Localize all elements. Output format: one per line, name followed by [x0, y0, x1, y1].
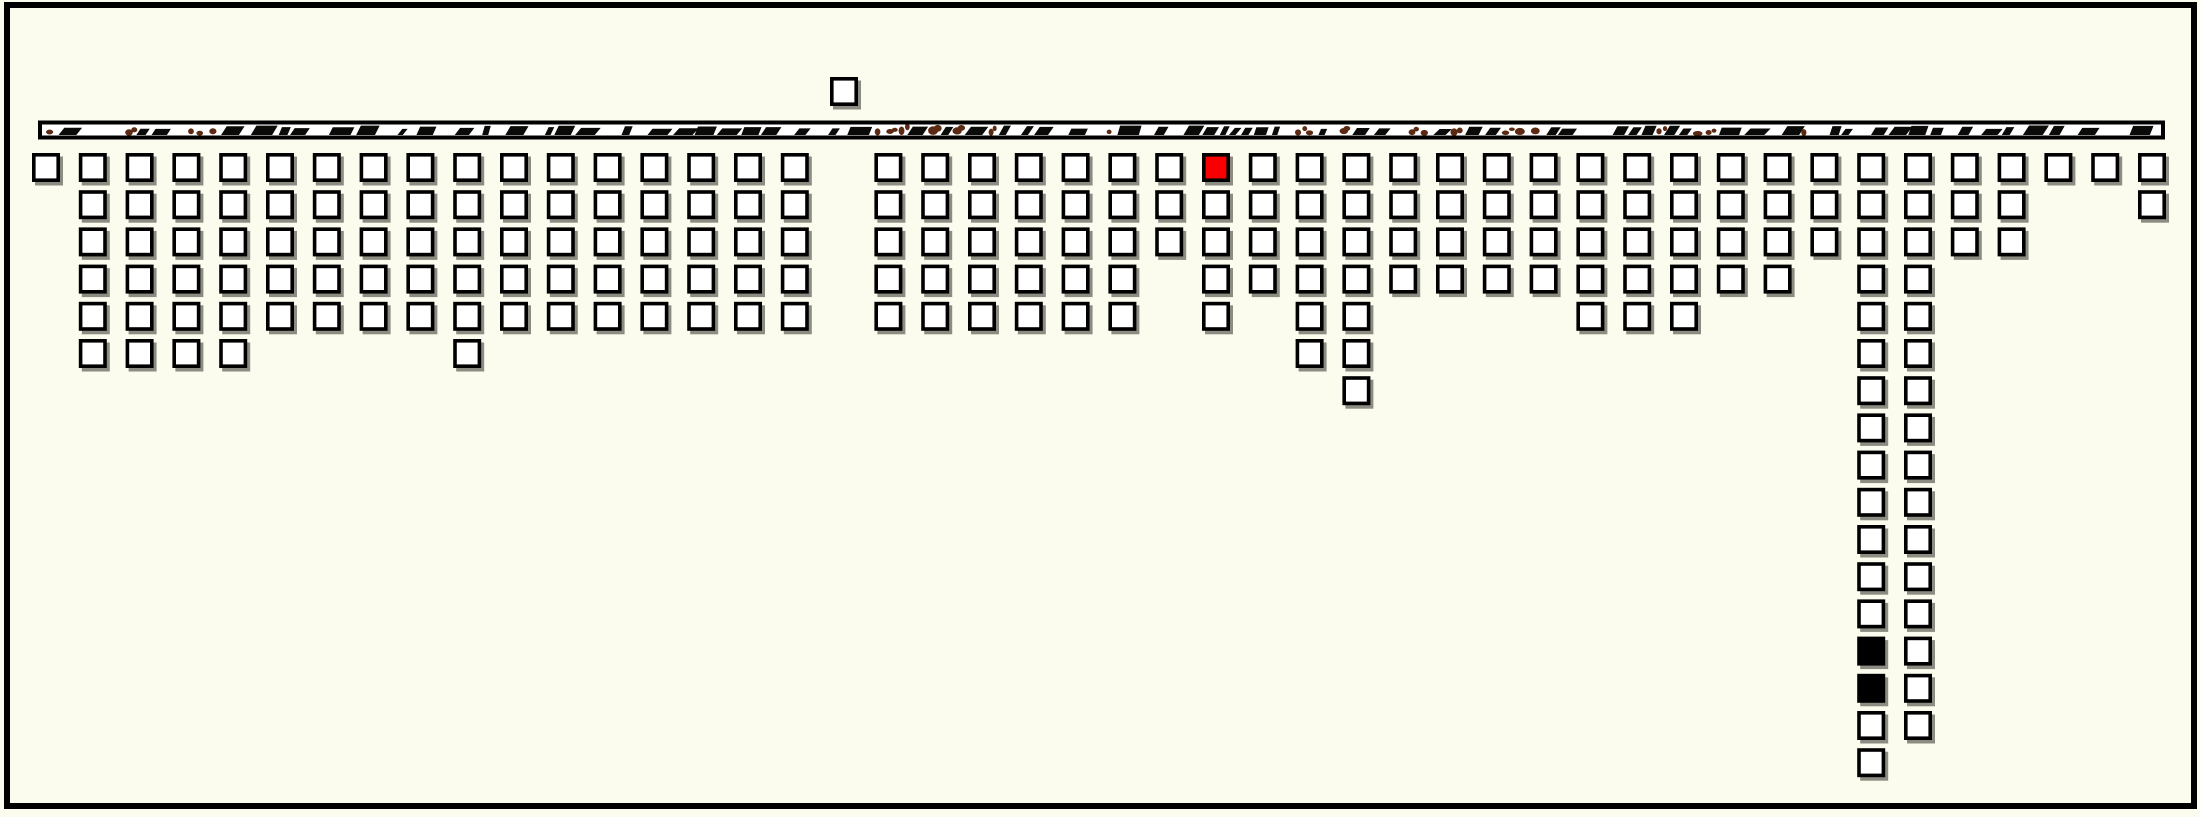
unit-square[interactable]	[1812, 192, 1841, 223]
unit-square[interactable]	[127, 229, 156, 260]
unit-square-face	[502, 155, 526, 180]
unit-square[interactable]	[1719, 155, 1748, 186]
unit-square[interactable]	[81, 304, 110, 335]
unit-square[interactable]	[736, 266, 765, 297]
unit-square[interactable]	[1578, 266, 1607, 297]
unit-square[interactable]	[221, 266, 250, 297]
unit-square[interactable]	[268, 192, 297, 223]
unit-square[interactable]	[81, 155, 110, 186]
unit-square[interactable]	[81, 192, 110, 223]
unit-square[interactable]	[1859, 155, 1888, 186]
unit-square-face	[1344, 155, 1368, 180]
unit-square[interactable]	[1906, 415, 1935, 446]
unit-square[interactable]	[1672, 192, 1701, 223]
unit-square[interactable]	[1578, 155, 1607, 186]
unit-square[interactable]	[174, 341, 203, 372]
unit-square[interactable]	[1344, 304, 1373, 335]
unit-square[interactable]	[1344, 192, 1373, 223]
unit-square[interactable]	[127, 266, 156, 297]
unit-square[interactable]	[455, 304, 484, 335]
unit-square-face	[689, 304, 713, 329]
unit-square[interactable]	[642, 266, 671, 297]
unit-square-face	[970, 155, 994, 180]
unit-square[interactable]	[1485, 192, 1514, 223]
unit-square[interactable]	[783, 304, 812, 335]
axis-mark-dot	[1509, 127, 1515, 131]
unit-square[interactable]	[1765, 266, 1794, 297]
unit-square[interactable]	[455, 266, 484, 297]
unit-square[interactable]	[1110, 192, 1139, 223]
unit-square[interactable]	[970, 192, 999, 223]
unit-square[interactable]	[642, 304, 671, 335]
unit-square[interactable]	[1063, 304, 1092, 335]
unit-square-face	[1297, 266, 1321, 291]
unit-square-face	[81, 266, 105, 291]
axis-mark-slash	[329, 127, 354, 135]
unit-square[interactable]	[876, 155, 905, 186]
unit-square[interactable]	[689, 155, 718, 186]
unit-square-face	[455, 229, 479, 254]
unit-square-face	[221, 229, 245, 254]
unit-square-face	[1906, 601, 1930, 626]
unit-square-face	[1297, 304, 1321, 329]
unit-square-face	[127, 192, 151, 217]
unit-square[interactable]	[174, 266, 203, 297]
unit-square-face	[1859, 564, 1883, 589]
unit-square[interactable]	[127, 304, 156, 335]
unit-square[interactable]	[1859, 266, 1888, 297]
unit-square-face	[408, 229, 432, 254]
unit-square[interactable]	[1017, 304, 1046, 335]
unit-square[interactable]	[502, 155, 531, 186]
unit-square[interactable]	[361, 192, 390, 223]
highlighted-square-red[interactable]	[1204, 155, 1233, 186]
unit-square[interactable]	[736, 304, 765, 335]
unit-square[interactable]	[783, 229, 812, 260]
unit-square[interactable]	[174, 304, 203, 335]
unit-square[interactable]	[783, 155, 812, 186]
unit-square[interactable]	[1812, 229, 1841, 260]
unit-square[interactable]	[1017, 192, 1046, 223]
unit-square[interactable]	[1999, 155, 2028, 186]
axis-mark-dot	[1295, 129, 1301, 135]
unit-square[interactable]	[81, 229, 110, 260]
unit-square[interactable]	[1578, 229, 1607, 260]
unit-square-face	[642, 192, 666, 217]
unit-square[interactable]	[315, 229, 344, 260]
unit-square[interactable]	[502, 266, 531, 297]
unit-square[interactable]	[455, 341, 484, 372]
unit-square[interactable]	[1906, 676, 1935, 707]
unit-square-face	[221, 192, 245, 217]
unit-square-face	[1204, 266, 1228, 291]
unit-square[interactable]	[1859, 192, 1888, 223]
unit-square[interactable]	[221, 304, 250, 335]
unit-square[interactable]	[502, 192, 531, 223]
axis-mark-slash	[1908, 126, 1928, 135]
axis-mark-dot	[1343, 126, 1350, 131]
unit-square-face	[1063, 192, 1087, 217]
unit-square[interactable]	[1906, 229, 1935, 260]
unit-square[interactable]	[455, 155, 484, 186]
unit-square[interactable]	[1719, 266, 1748, 297]
unit-square[interactable]	[1953, 229, 1982, 260]
unit-square[interactable]	[408, 304, 437, 335]
unit-square-face	[1157, 155, 1181, 180]
unit-square[interactable]	[1812, 155, 1841, 186]
unit-square[interactable]	[2046, 155, 2075, 186]
unit-square[interactable]	[595, 192, 624, 223]
unit-square[interactable]	[1017, 155, 1046, 186]
unit-square[interactable]	[408, 229, 437, 260]
unit-square[interactable]	[1859, 564, 1888, 595]
unit-square[interactable]	[1859, 378, 1888, 409]
unit-square[interactable]	[642, 192, 671, 223]
unit-square[interactable]	[1531, 192, 1560, 223]
unit-square[interactable]	[1859, 452, 1888, 483]
unit-square[interactable]	[1297, 266, 1326, 297]
unit-square[interactable]	[1906, 638, 1935, 669]
unit-square[interactable]	[408, 192, 437, 223]
unit-square[interactable]	[1859, 601, 1888, 632]
unit-square-face	[642, 229, 666, 254]
unit-square[interactable]	[1531, 229, 1560, 260]
unit-square[interactable]	[595, 229, 624, 260]
unit-square[interactable]	[361, 155, 390, 186]
unit-square[interactable]	[1110, 266, 1139, 297]
unit-square[interactable]	[315, 304, 344, 335]
unit-square[interactable]	[1906, 564, 1935, 595]
unit-square[interactable]	[1063, 266, 1092, 297]
unit-square[interactable]	[970, 304, 999, 335]
unit-square[interactable]	[1297, 192, 1326, 223]
unit-square[interactable]	[1906, 452, 1935, 483]
unit-square[interactable]	[595, 304, 624, 335]
unit-square[interactable]	[1391, 192, 1420, 223]
unit-square[interactable]	[1344, 266, 1373, 297]
unit-square-face	[1297, 155, 1321, 180]
unit-square[interactable]	[1625, 304, 1654, 335]
unit-square-face	[783, 192, 807, 217]
unit-square[interactable]	[1485, 229, 1514, 260]
unit-square[interactable]	[1906, 527, 1935, 558]
unit-square[interactable]	[876, 229, 905, 260]
unit-square[interactable]	[268, 229, 297, 260]
unit-square[interactable]	[1344, 378, 1373, 409]
unit-square[interactable]	[127, 192, 156, 223]
unit-square[interactable]	[502, 304, 531, 335]
unit-square-face	[127, 341, 151, 366]
unit-grid	[34, 155, 2169, 781]
unit-square-face	[923, 266, 947, 291]
unit-square[interactable]	[783, 266, 812, 297]
unit-square[interactable]	[876, 304, 905, 335]
unit-square[interactable]	[783, 192, 812, 223]
unit-square[interactable]	[1485, 155, 1514, 186]
unit-square[interactable]	[1297, 229, 1326, 260]
unit-square[interactable]	[268, 266, 297, 297]
unit-square-face	[81, 229, 105, 254]
unit-square[interactable]	[1953, 155, 1982, 186]
unit-square[interactable]	[81, 266, 110, 297]
unit-square[interactable]	[1204, 266, 1233, 297]
unit-square[interactable]	[1110, 229, 1139, 260]
unit-square[interactable]	[1672, 266, 1701, 297]
unit-square[interactable]	[923, 304, 952, 335]
unit-square-face	[1859, 713, 1883, 738]
unit-square-face	[1391, 192, 1415, 217]
unit-square-face	[689, 155, 713, 180]
unit-square[interactable]	[736, 192, 765, 223]
unit-square[interactable]	[876, 266, 905, 297]
unit-square[interactable]	[970, 229, 999, 260]
unit-square-face	[1578, 304, 1602, 329]
unit-square-face	[81, 341, 105, 366]
unit-square-face	[408, 304, 432, 329]
unit-square[interactable]	[549, 155, 578, 186]
unit-square[interactable]	[1391, 229, 1420, 260]
unit-square[interactable]	[221, 229, 250, 260]
unit-square[interactable]	[1485, 266, 1514, 297]
unit-square[interactable]	[1906, 490, 1935, 521]
unit-square[interactable]	[1906, 713, 1935, 744]
unit-square-face	[1812, 192, 1836, 217]
unit-square[interactable]	[1391, 266, 1420, 297]
axis-mark-dot	[1414, 127, 1419, 132]
floating-square-face	[832, 79, 856, 104]
unit-square-face	[81, 304, 105, 329]
unit-square[interactable]	[1297, 341, 1326, 372]
unit-square[interactable]	[549, 192, 578, 223]
unit-square[interactable]	[1344, 229, 1373, 260]
unit-square[interactable]	[970, 266, 999, 297]
unit-square[interactable]	[1672, 155, 1701, 186]
unit-square[interactable]	[1859, 341, 1888, 372]
unit-square-face	[1344, 229, 1368, 254]
unit-square[interactable]	[1859, 750, 1888, 781]
axis-mark-dot	[899, 126, 905, 135]
unit-square[interactable]	[1251, 192, 1280, 223]
unit-square[interactable]	[1438, 155, 1467, 186]
unit-square[interactable]	[736, 155, 765, 186]
unit-square[interactable]	[502, 229, 531, 260]
unit-square[interactable]	[1531, 155, 1560, 186]
unit-square[interactable]	[408, 266, 437, 297]
unit-square[interactable]	[1578, 304, 1607, 335]
unit-square[interactable]	[1906, 378, 1935, 409]
unit-square[interactable]	[1017, 229, 1046, 260]
unit-square-face	[1485, 266, 1509, 291]
unit-square[interactable]	[1344, 341, 1373, 372]
unit-square[interactable]	[1906, 192, 1935, 223]
unit-square[interactable]	[923, 155, 952, 186]
unit-square[interactable]	[642, 229, 671, 260]
selected-square-black[interactable]	[1859, 676, 1888, 707]
unit-square[interactable]	[361, 266, 390, 297]
unit-square[interactable]	[1906, 155, 1935, 186]
axis-mark-dot	[1693, 131, 1703, 136]
axis-mark-dot	[989, 129, 994, 136]
unit-square[interactable]	[361, 304, 390, 335]
unit-square[interactable]	[1859, 527, 1888, 558]
unit-square[interactable]	[455, 192, 484, 223]
unit-square-face	[549, 155, 573, 180]
unit-square-face	[1625, 229, 1649, 254]
unit-square-face	[1625, 304, 1649, 329]
unit-square[interactable]	[1297, 155, 1326, 186]
unit-square[interactable]	[268, 155, 297, 186]
unit-square[interactable]	[1344, 155, 1373, 186]
unit-square-face	[1906, 564, 1930, 589]
unit-square[interactable]	[970, 155, 999, 186]
unit-square-face	[174, 229, 198, 254]
unit-square[interactable]	[1765, 192, 1794, 223]
unit-square[interactable]	[1859, 304, 1888, 335]
unit-square-face	[1906, 638, 1930, 663]
axis-mark-dot	[934, 125, 942, 132]
unit-square[interactable]	[1765, 155, 1794, 186]
unit-square[interactable]	[1625, 192, 1654, 223]
unit-square[interactable]	[1719, 229, 1748, 260]
unit-square[interactable]	[1672, 229, 1701, 260]
unit-square[interactable]	[876, 192, 905, 223]
unit-square[interactable]	[1063, 155, 1092, 186]
unit-square[interactable]	[1204, 192, 1233, 223]
unit-square[interactable]	[736, 229, 765, 260]
unit-square[interactable]	[1438, 229, 1467, 260]
unit-square[interactable]	[2093, 155, 2122, 186]
unit-square[interactable]	[1953, 192, 1982, 223]
unit-square[interactable]	[221, 155, 250, 186]
unit-square-face	[1297, 192, 1321, 217]
unit-square[interactable]	[1906, 341, 1935, 372]
unit-square[interactable]	[549, 266, 578, 297]
unit-square[interactable]	[689, 192, 718, 223]
unit-square[interactable]	[923, 229, 952, 260]
unit-square[interactable]	[1297, 304, 1326, 335]
unit-square[interactable]	[1578, 192, 1607, 223]
unit-square[interactable]	[315, 155, 344, 186]
unit-square[interactable]	[1999, 192, 2028, 223]
unit-square[interactable]	[689, 304, 718, 335]
unit-square[interactable]	[127, 341, 156, 372]
unit-square[interactable]	[689, 229, 718, 260]
unit-square[interactable]	[1391, 155, 1420, 186]
unit-square-face	[268, 229, 292, 254]
unit-square-face	[502, 266, 526, 291]
unit-square[interactable]	[361, 229, 390, 260]
unit-square[interactable]	[923, 266, 952, 297]
unit-square[interactable]	[1859, 415, 1888, 446]
unit-square-face	[1906, 229, 1930, 254]
unit-square-face	[1812, 229, 1836, 254]
floating-square[interactable]	[832, 79, 861, 110]
unit-square[interactable]	[1859, 713, 1888, 744]
unit-square[interactable]	[1906, 304, 1935, 335]
unit-square[interactable]	[549, 304, 578, 335]
unit-square[interactable]	[1157, 192, 1186, 223]
unit-square[interactable]	[1204, 304, 1233, 335]
unit-square[interactable]	[1251, 266, 1280, 297]
unit-square[interactable]	[1719, 192, 1748, 223]
axis-mark-dot	[209, 128, 216, 134]
unit-square[interactable]	[455, 229, 484, 260]
unit-square[interactable]	[174, 229, 203, 260]
unit-square[interactable]	[1625, 229, 1654, 260]
unit-square[interactable]	[221, 192, 250, 223]
unit-square[interactable]	[1157, 229, 1186, 260]
unit-square[interactable]	[1859, 229, 1888, 260]
unit-square[interactable]	[1157, 155, 1186, 186]
unit-square[interactable]	[1531, 266, 1560, 297]
unit-square[interactable]	[1625, 155, 1654, 186]
unit-square[interactable]	[1110, 304, 1139, 335]
unit-square[interactable]	[595, 155, 624, 186]
unit-square[interactable]	[315, 266, 344, 297]
selected-square-black[interactable]	[1859, 638, 1888, 669]
unit-square[interactable]	[1063, 192, 1092, 223]
unit-square-face	[1999, 155, 2023, 180]
unit-square-face	[1531, 266, 1555, 291]
unit-square[interactable]	[408, 155, 437, 186]
unit-square-face	[268, 266, 292, 291]
unit-square[interactable]	[923, 192, 952, 223]
unit-square[interactable]	[642, 155, 671, 186]
unit-square[interactable]	[1765, 229, 1794, 260]
unit-square[interactable]	[174, 155, 203, 186]
unit-square[interactable]	[1251, 229, 1280, 260]
unit-square[interactable]	[1999, 229, 2028, 260]
unit-square-face	[268, 304, 292, 329]
unit-square-face	[1157, 229, 1181, 254]
unit-square[interactable]	[315, 192, 344, 223]
unit-square-face	[361, 229, 385, 254]
unit-square[interactable]	[549, 229, 578, 260]
unit-square[interactable]	[1063, 229, 1092, 260]
unit-square-face	[1344, 266, 1368, 291]
unit-square[interactable]	[595, 266, 624, 297]
unit-square[interactable]	[1859, 490, 1888, 521]
unit-square[interactable]	[174, 192, 203, 223]
unit-square[interactable]	[268, 304, 297, 335]
unit-square[interactable]	[1017, 266, 1046, 297]
unit-square[interactable]	[34, 155, 63, 186]
unit-square[interactable]	[81, 341, 110, 372]
unit-square[interactable]	[1438, 192, 1467, 223]
unit-square[interactable]	[1672, 304, 1701, 335]
unit-square-face	[1531, 192, 1555, 217]
unit-square[interactable]	[1204, 229, 1233, 260]
unit-square[interactable]	[221, 341, 250, 372]
unit-square-face	[1485, 192, 1509, 217]
unit-square[interactable]	[1906, 601, 1935, 632]
axis-mark-slash	[741, 127, 761, 135]
unit-square[interactable]	[1625, 266, 1654, 297]
axis-mark-dot	[1457, 127, 1463, 133]
unit-square-face	[127, 229, 151, 254]
unit-square[interactable]	[127, 155, 156, 186]
unit-square[interactable]	[2140, 155, 2169, 186]
unit-square[interactable]	[1110, 155, 1139, 186]
unit-square[interactable]	[1438, 266, 1467, 297]
unit-square[interactable]	[1251, 155, 1280, 186]
unit-square[interactable]	[2140, 192, 2169, 223]
unit-square-face	[1438, 155, 1462, 180]
unit-square-face	[1204, 229, 1228, 254]
unit-square[interactable]	[689, 266, 718, 297]
unit-square-face	[502, 304, 526, 329]
unit-square[interactable]	[1906, 266, 1935, 297]
